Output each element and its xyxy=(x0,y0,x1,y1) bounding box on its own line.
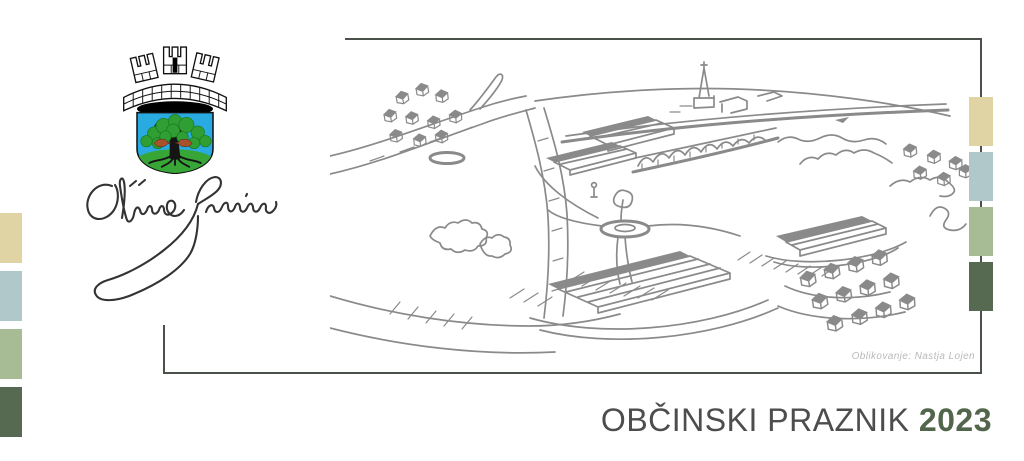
town-sketch xyxy=(330,46,990,378)
bridge xyxy=(633,128,778,172)
banner-title: OBČINSKI PRAZNIK 2023 xyxy=(601,402,992,439)
design-credit: Oblikovanje: Nastja Lojen xyxy=(852,351,975,362)
accent-square xyxy=(0,271,22,321)
accent-squares-right xyxy=(969,97,993,311)
roads-bottom-left xyxy=(330,296,620,353)
building-right xyxy=(738,216,906,276)
accent-square xyxy=(0,213,22,263)
signature-handwriting xyxy=(78,172,283,322)
roundabout xyxy=(548,183,740,284)
church-and-buildings xyxy=(670,62,782,113)
accent-square xyxy=(969,207,993,256)
roads-left xyxy=(330,74,568,318)
accent-square xyxy=(969,97,993,146)
accent-square xyxy=(969,152,993,201)
coat-of-arms-icon xyxy=(118,38,232,174)
frame-left-notch xyxy=(163,325,165,374)
accent-squares-left xyxy=(0,213,22,437)
frame-top-line xyxy=(345,38,982,40)
crown-tower-left xyxy=(130,53,158,82)
accent-square xyxy=(0,329,22,379)
bushes xyxy=(430,220,511,258)
banner-title-year: 2023 xyxy=(919,402,992,438)
accent-square xyxy=(0,387,22,437)
crown-tower-right xyxy=(191,53,219,82)
banner-canvas: Oblikovanje: Nastja Lojen OBČINSKI PRAZN… xyxy=(0,0,1024,461)
accent-square xyxy=(969,262,993,311)
banner-title-text: OBČINSKI PRAZNIK xyxy=(601,402,910,438)
